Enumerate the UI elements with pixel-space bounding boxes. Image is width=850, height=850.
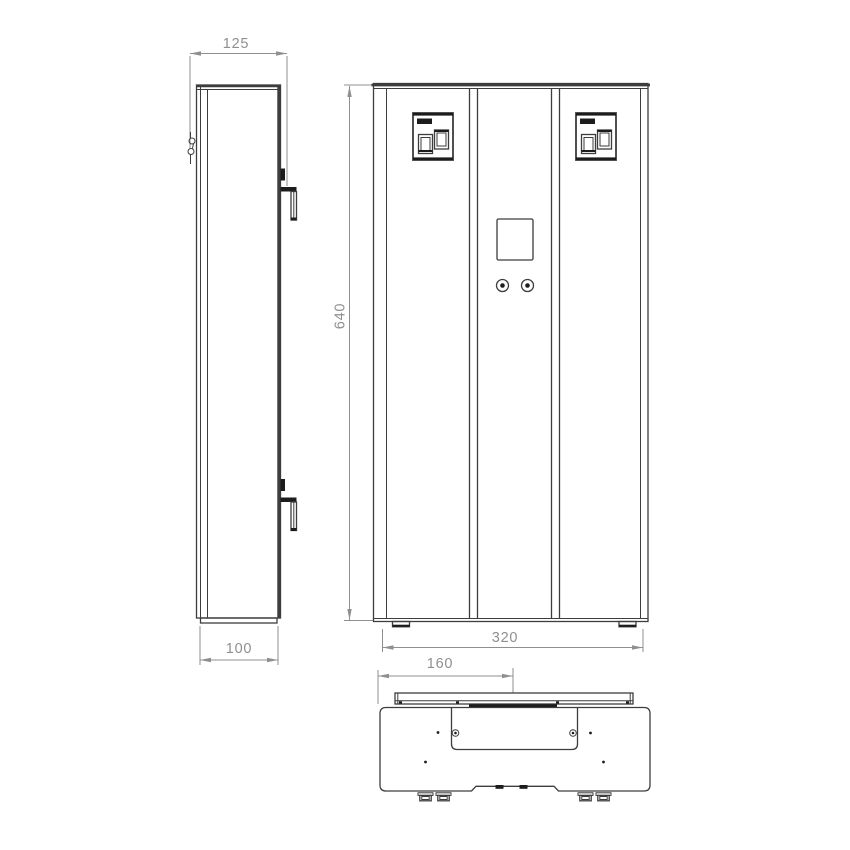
- rail-tab: [399, 701, 402, 703]
- screw-center: [572, 732, 575, 735]
- rail-tab: [556, 701, 559, 703]
- dimension-label-125: 125: [223, 36, 250, 52]
- breaker-top-rail: [576, 113, 616, 116]
- bracket-hook-cap: [291, 528, 297, 531]
- rail-tab: [626, 701, 629, 703]
- notch-tab: [520, 785, 528, 789]
- rail-tab: [456, 701, 459, 703]
- bracket-arm: [281, 498, 297, 503]
- breaker-toggle-left-edge: [582, 150, 596, 152]
- breaker-label: [580, 119, 595, 125]
- bracket-nub: [281, 169, 286, 181]
- pilot-hole: [602, 761, 605, 764]
- breaker-toggle-right-edge: [435, 130, 449, 132]
- foot-pad: [619, 625, 636, 627]
- rail-body: [395, 693, 633, 704]
- knob-center: [500, 283, 505, 288]
- breaker-bottom-rail: [413, 157, 453, 160]
- dimension-label-160: 160: [427, 656, 454, 672]
- breaker-toggle-left-edge: [419, 150, 433, 152]
- notch-tab: [496, 785, 504, 789]
- knob-center: [525, 283, 530, 288]
- breaker-bottom-rail: [576, 157, 616, 160]
- bracket-nub: [281, 479, 286, 491]
- bracket-arm: [281, 187, 297, 192]
- bracket-hook-cap: [291, 218, 297, 221]
- breaker-toggle-right-edge: [598, 130, 612, 132]
- pilot-hole: [589, 732, 592, 735]
- mounting-rail: [395, 693, 633, 704]
- breaker-label: [417, 119, 432, 125]
- pilot-hole: [424, 761, 427, 764]
- breaker-top-rail: [413, 113, 453, 116]
- dimension-label-640: 640: [333, 303, 349, 330]
- pilot-hole: [437, 731, 440, 734]
- screw-center: [454, 732, 457, 735]
- technical-drawing: 125 100 640 320: [0, 0, 850, 850]
- dimension-label-320: 320: [492, 630, 519, 646]
- drawing-canvas: 125 100 640 320: [0, 0, 850, 850]
- dimension-label-100: 100: [226, 641, 253, 657]
- foot-pad: [393, 625, 410, 627]
- bottom-view: [380, 693, 650, 801]
